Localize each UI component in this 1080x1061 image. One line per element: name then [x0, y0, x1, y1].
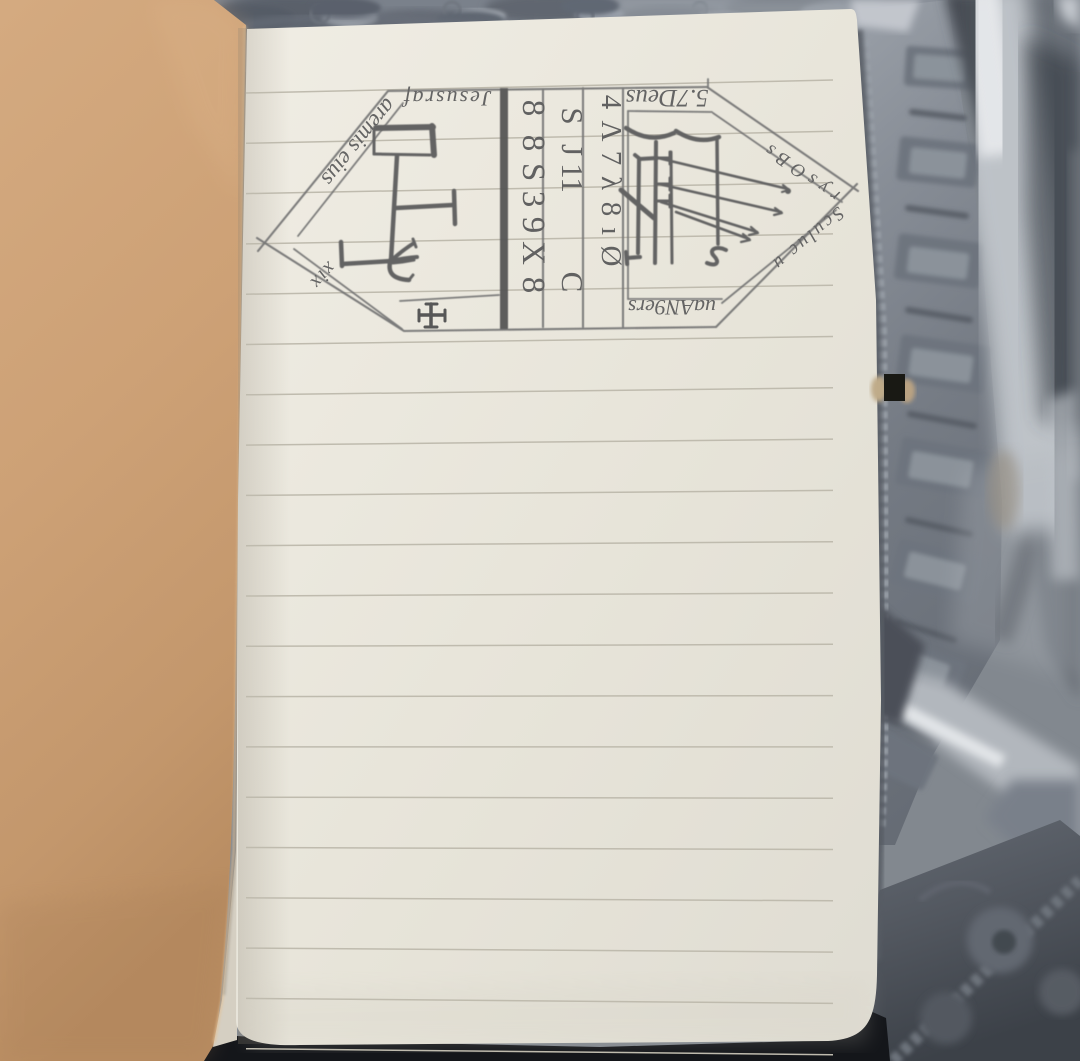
svg-text:S: S: [555, 107, 590, 124]
svg-text:Jesusraf: Jesusraf: [401, 86, 491, 111]
svg-text:Ø: Ø: [595, 246, 627, 267]
svg-text:11: 11: [555, 163, 590, 193]
svg-text:8: 8: [515, 100, 551, 117]
svg-text:J: J: [555, 144, 590, 156]
svg-text:λ: λ: [595, 176, 627, 190]
svg-text:8: 8: [515, 135, 551, 152]
svg-text:4: 4: [595, 95, 627, 110]
svg-text:3: 3: [515, 191, 551, 208]
svg-text:S: S: [515, 163, 551, 181]
svg-text:8: 8: [595, 202, 627, 217]
svg-text:C: C: [555, 272, 590, 293]
svg-text:8: 8: [515, 277, 551, 294]
svg-text:9: 9: [515, 217, 551, 234]
svg-text:5.7Deus: 5.7Deus: [626, 84, 709, 111]
svg-text:X: X: [515, 241, 551, 265]
svg-text:7: 7: [595, 151, 627, 166]
svg-text:ı: ı: [595, 227, 627, 235]
svg-text:uaAN9ers: uaAN9ers: [628, 295, 716, 320]
svg-text:Λ: Λ: [595, 120, 627, 141]
